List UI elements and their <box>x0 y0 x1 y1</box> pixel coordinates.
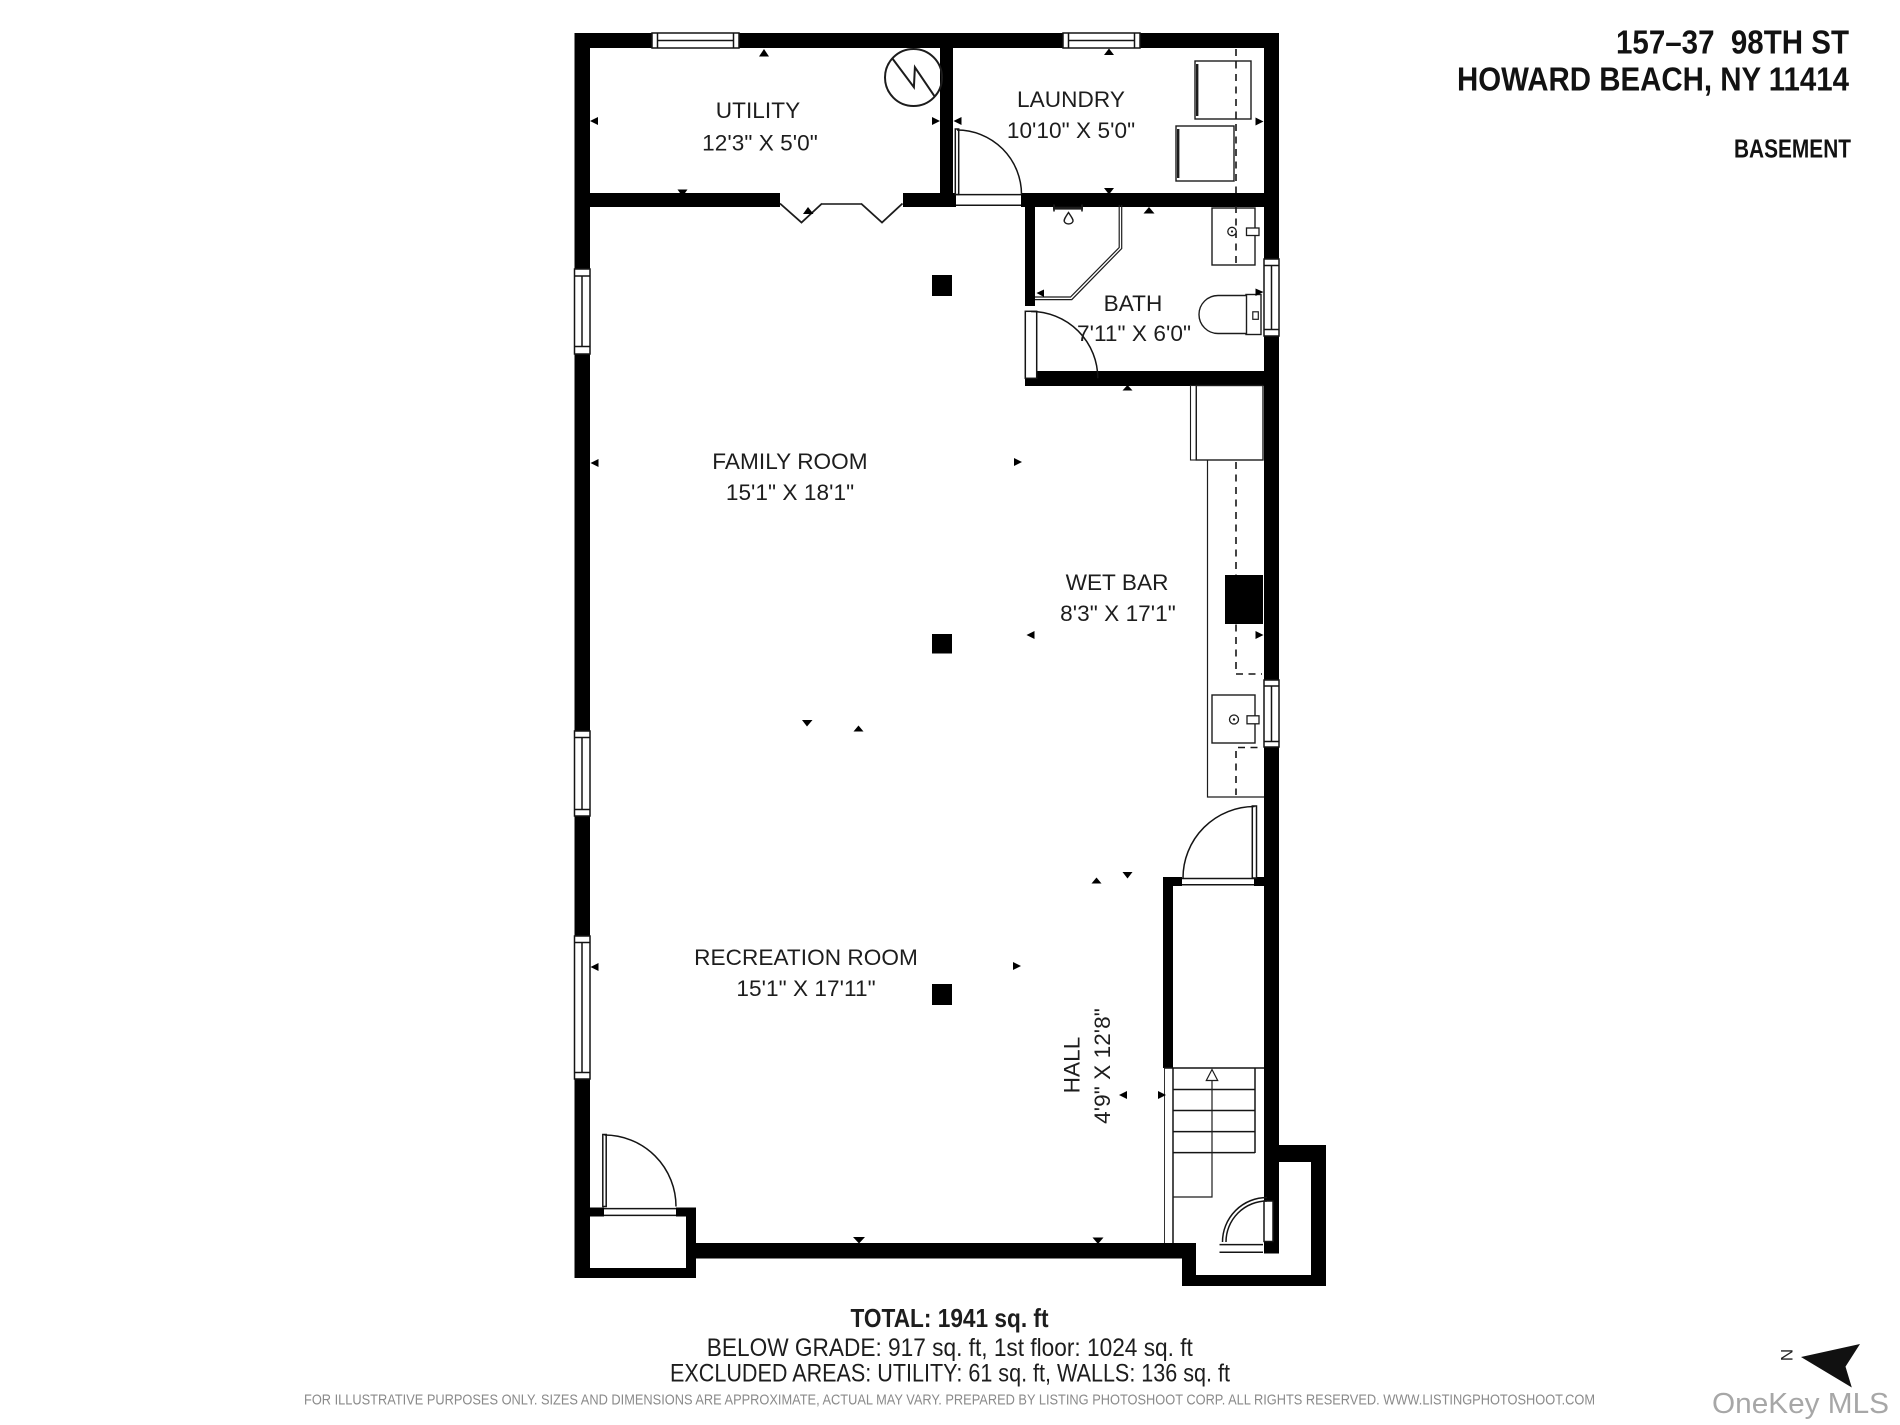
svg-text:OneKey MLS: OneKey MLS <box>1712 1388 1889 1420</box>
svg-text:TOTAL: 1941 sq. ft: TOTAL: 1941 sq. ft <box>851 1303 1049 1333</box>
svg-text:BASEMENT: BASEMENT <box>1734 134 1851 164</box>
svg-text:N: N <box>1778 1349 1797 1361</box>
svg-text:HOWARD BEACH, NY 11414: HOWARD BEACH, NY 11414 <box>1457 61 1850 98</box>
svg-text:157–37 98TH ST: 157–37 98TH ST <box>1616 24 1849 61</box>
svg-text:7'11" X 6'0": 7'11" X 6'0" <box>1077 321 1191 346</box>
svg-text:RECREATION ROOM: RECREATION ROOM <box>694 945 918 970</box>
svg-text:BELOW GRADE: 917 sq. ft, 1st f: BELOW GRADE: 917 sq. ft, 1st floor: 1024… <box>707 1334 1193 1362</box>
svg-text:8'3" X 17'1": 8'3" X 17'1" <box>1060 601 1176 626</box>
svg-text:15'1" X 17'11": 15'1" X 17'11" <box>736 976 875 1001</box>
svg-text:FOR ILLUSTRATIVE PURPOSES ONLY: FOR ILLUSTRATIVE PURPOSES ONLY. SIZES AN… <box>304 1393 1595 1409</box>
svg-text:4'9" X 12'8": 4'9" X 12'8" <box>1090 1008 1115 1124</box>
svg-text:FAMILY ROOM: FAMILY ROOM <box>712 449 867 474</box>
svg-text:10'10" X 5'0": 10'10" X 5'0" <box>1007 118 1135 143</box>
svg-text:UTILITY: UTILITY <box>716 98 800 123</box>
svg-text:WET BAR: WET BAR <box>1066 570 1169 595</box>
svg-text:EXCLUDED AREAS: UTILITY: 61 sq: EXCLUDED AREAS: UTILITY: 61 sq. ft, WALL… <box>670 1360 1230 1388</box>
svg-text:BATH: BATH <box>1104 291 1163 316</box>
svg-text:LAUNDRY: LAUNDRY <box>1017 87 1125 112</box>
svg-text:HALL: HALL <box>1060 1037 1085 1094</box>
svg-text:15'1" X 18'1": 15'1" X 18'1" <box>726 480 854 505</box>
svg-text:12'3" X 5'0": 12'3" X 5'0" <box>702 131 818 156</box>
